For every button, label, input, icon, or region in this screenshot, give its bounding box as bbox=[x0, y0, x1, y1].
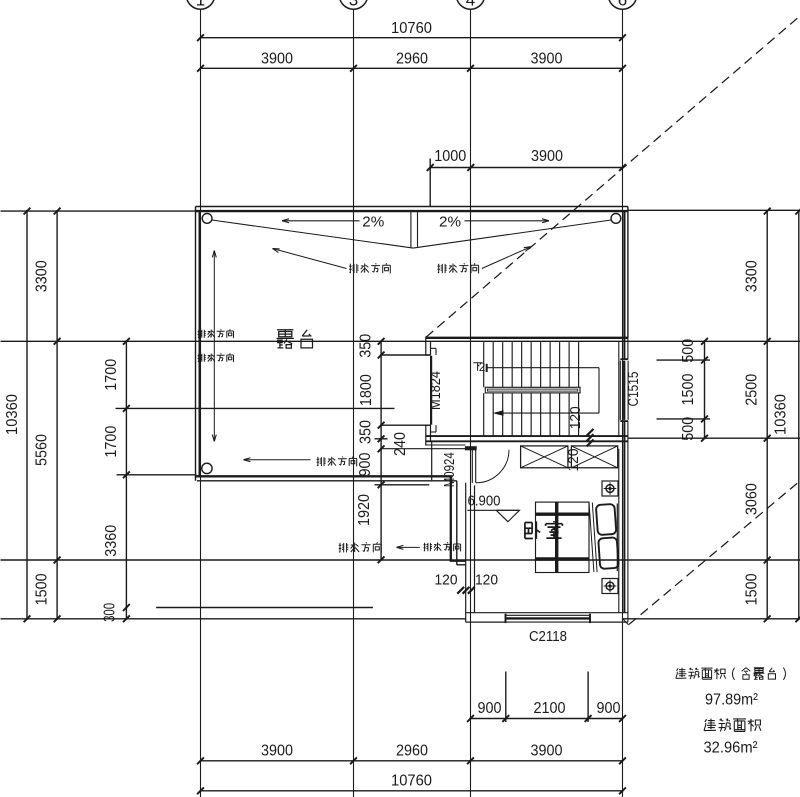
svg-text:10360: 10360 bbox=[773, 394, 790, 435]
svg-text:32.96m²: 32.96m² bbox=[704, 740, 759, 757]
svg-text:1000: 1000 bbox=[434, 148, 466, 165]
svg-text:1500: 1500 bbox=[744, 573, 761, 605]
svg-text:97.89m²: 97.89m² bbox=[705, 692, 759, 709]
svg-text:1: 1 bbox=[196, 0, 205, 10]
svg-text:4: 4 bbox=[466, 0, 475, 10]
svg-text:1500: 1500 bbox=[680, 373, 697, 405]
svg-text:900: 900 bbox=[478, 700, 502, 717]
svg-text:240: 240 bbox=[392, 432, 409, 456]
svg-text:120: 120 bbox=[435, 572, 458, 589]
svg-text:1920: 1920 bbox=[356, 494, 373, 526]
svg-text:2: 2 bbox=[479, 362, 485, 374]
svg-text:900: 900 bbox=[597, 700, 621, 717]
svg-text:3900: 3900 bbox=[531, 743, 563, 760]
svg-text:3900: 3900 bbox=[531, 148, 563, 165]
svg-text:3900: 3900 bbox=[531, 51, 563, 68]
svg-text:1800: 1800 bbox=[358, 374, 375, 406]
svg-text:C1515: C1515 bbox=[625, 372, 642, 407]
svg-text:6: 6 bbox=[618, 0, 627, 10]
svg-text:2%: 2% bbox=[362, 214, 384, 231]
svg-text:1500: 1500 bbox=[34, 573, 51, 605]
svg-text:3: 3 bbox=[349, 0, 358, 10]
svg-text:3900: 3900 bbox=[261, 743, 293, 760]
svg-text:1700: 1700 bbox=[103, 359, 120, 391]
svg-text:2100: 2100 bbox=[534, 700, 566, 717]
svg-text:120: 120 bbox=[567, 406, 584, 429]
svg-text:1700: 1700 bbox=[103, 426, 120, 458]
svg-text:350: 350 bbox=[358, 420, 375, 444]
svg-text:3900: 3900 bbox=[261, 51, 293, 68]
svg-text:3360: 3360 bbox=[103, 525, 120, 557]
svg-text:M0924: M0924 bbox=[441, 452, 458, 487]
svg-text:2960: 2960 bbox=[396, 51, 428, 68]
svg-text:3300: 3300 bbox=[744, 260, 761, 292]
svg-text:2%: 2% bbox=[439, 214, 461, 231]
svg-text:6.900: 6.900 bbox=[468, 493, 501, 510]
svg-text:500: 500 bbox=[680, 339, 697, 363]
svg-text:5560: 5560 bbox=[34, 434, 51, 466]
svg-text:350: 350 bbox=[358, 334, 375, 358]
svg-text:500: 500 bbox=[680, 417, 697, 441]
svg-text:300: 300 bbox=[101, 603, 118, 622]
svg-text:C2118: C2118 bbox=[529, 628, 567, 645]
svg-text:120: 120 bbox=[475, 572, 498, 589]
svg-text:900: 900 bbox=[357, 452, 374, 476]
svg-text:10760: 10760 bbox=[391, 20, 432, 37]
svg-text:3060: 3060 bbox=[744, 483, 761, 515]
svg-text:2500: 2500 bbox=[744, 374, 761, 406]
svg-text:3300: 3300 bbox=[34, 260, 51, 292]
svg-text:10360: 10360 bbox=[4, 394, 21, 435]
svg-text:2960: 2960 bbox=[396, 743, 428, 760]
svg-text:M1824: M1824 bbox=[427, 371, 444, 410]
svg-text:10760: 10760 bbox=[391, 773, 432, 790]
